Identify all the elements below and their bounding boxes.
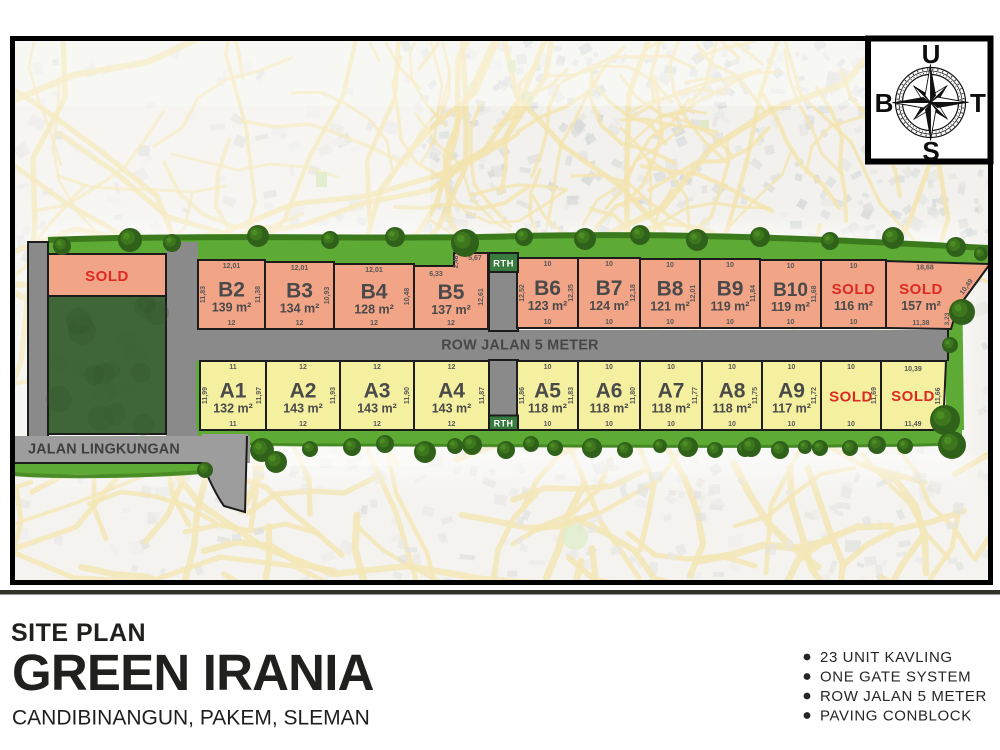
svg-text:11,80: 11,80: [630, 387, 637, 404]
svg-text:A7: A7: [658, 380, 685, 403]
svg-text:10: 10: [788, 421, 796, 428]
svg-text:SITE PLAN: SITE PLAN: [11, 619, 146, 647]
svg-text:B5: B5: [438, 281, 465, 304]
svg-text:23 UNIT KAVLING: 23 UNIT KAVLING: [820, 649, 953, 666]
svg-text:11,86: 11,86: [519, 387, 526, 404]
svg-text:10: 10: [605, 364, 613, 371]
svg-text:12: 12: [448, 364, 456, 371]
svg-text:10: 10: [605, 261, 613, 268]
svg-text:10,39: 10,39: [904, 366, 922, 373]
svg-text:12,01: 12,01: [223, 263, 241, 270]
svg-text:11: 11: [229, 421, 237, 428]
svg-text:12: 12: [373, 421, 381, 428]
svg-text:11,84: 11,84: [750, 285, 757, 302]
svg-text:11,87: 11,87: [479, 387, 486, 404]
svg-text:128 m²: 128 m²: [354, 303, 394, 317]
svg-text:B: B: [875, 88, 894, 118]
svg-text:12,35: 12,35: [568, 284, 575, 302]
svg-text:10,93: 10,93: [324, 287, 331, 305]
svg-text:12: 12: [228, 320, 236, 327]
svg-text:10: 10: [847, 421, 855, 428]
svg-text:12,01: 12,01: [690, 285, 697, 303]
svg-text:10: 10: [850, 319, 858, 326]
svg-text:12,01: 12,01: [291, 265, 309, 272]
svg-text:10: 10: [847, 364, 855, 371]
svg-text:118 m²: 118 m²: [590, 402, 629, 416]
svg-text:A2: A2: [290, 380, 317, 403]
svg-text:B9: B9: [717, 278, 744, 301]
svg-text:12: 12: [447, 320, 455, 327]
svg-text:11,99: 11,99: [202, 387, 209, 404]
svg-text:10: 10: [605, 319, 613, 326]
svg-text:12: 12: [299, 421, 307, 428]
svg-text:B7: B7: [596, 277, 623, 300]
svg-text:12,18: 12,18: [630, 284, 637, 302]
svg-text:B2: B2: [218, 279, 245, 302]
svg-text:A9: A9: [778, 380, 805, 403]
svg-text:B6: B6: [534, 277, 561, 300]
svg-text:10: 10: [544, 364, 552, 371]
svg-text:B4: B4: [361, 281, 388, 304]
svg-text:137 m²: 137 m²: [431, 303, 471, 317]
svg-text:12: 12: [373, 364, 381, 371]
svg-text:A1: A1: [220, 380, 247, 403]
svg-text:10: 10: [666, 262, 674, 269]
svg-text:118 m²: 118 m²: [528, 402, 567, 416]
svg-text:10: 10: [666, 319, 674, 326]
svg-text:118 m²: 118 m²: [652, 402, 691, 416]
svg-text:10: 10: [787, 263, 795, 270]
svg-text:117 m²: 117 m²: [772, 402, 811, 416]
svg-text:10: 10: [667, 364, 675, 371]
svg-text:11,75: 11,75: [752, 387, 759, 404]
svg-text:10: 10: [787, 319, 795, 326]
svg-text:A6: A6: [596, 380, 623, 403]
svg-text:RTH: RTH: [494, 419, 514, 429]
svg-text:11,68: 11,68: [811, 285, 818, 302]
svg-text:10,48: 10,48: [404, 288, 411, 306]
svg-text:10: 10: [728, 421, 736, 428]
svg-text:10: 10: [850, 263, 858, 270]
svg-text:A4: A4: [438, 380, 465, 403]
svg-text:ROW JALAN 5 METER: ROW JALAN 5 METER: [820, 688, 987, 705]
svg-text:11,93: 11,93: [330, 387, 337, 404]
svg-text:ROW JALAN 5 METER: ROW JALAN 5 METER: [441, 338, 599, 354]
svg-text:143 m²: 143 m²: [432, 402, 472, 416]
svg-text:11,38: 11,38: [255, 286, 262, 303]
svg-text:10: 10: [667, 421, 675, 428]
svg-text:T: T: [970, 88, 986, 118]
svg-text:12,61: 12,61: [478, 288, 485, 306]
svg-text:11,38: 11,38: [912, 320, 929, 327]
svg-text:12: 12: [296, 320, 304, 327]
svg-text:U: U: [922, 39, 941, 69]
svg-text:10: 10: [788, 364, 796, 371]
svg-text:11,83: 11,83: [200, 286, 207, 303]
svg-text:119 m²: 119 m²: [771, 300, 810, 314]
svg-text:5,67: 5,67: [468, 255, 482, 262]
svg-text:SOLD: SOLD: [899, 281, 943, 298]
svg-text:SOLD: SOLD: [891, 388, 935, 405]
svg-text:124 m²: 124 m²: [589, 299, 629, 313]
svg-text:RTH: RTH: [493, 259, 514, 270]
svg-text:134 m²: 134 m²: [280, 302, 320, 316]
svg-text:PAVING CONBLOCK: PAVING CONBLOCK: [820, 708, 972, 725]
svg-text:10: 10: [726, 262, 734, 269]
svg-text:132 m²: 132 m²: [213, 402, 253, 416]
svg-text:119 m²: 119 m²: [711, 300, 750, 314]
svg-text:11,49: 11,49: [904, 421, 921, 428]
svg-text:10: 10: [544, 319, 552, 326]
svg-text:10: 10: [544, 261, 552, 268]
svg-text:6,33: 6,33: [429, 271, 443, 278]
svg-text:123 m²: 123 m²: [528, 299, 568, 313]
svg-text:11,90: 11,90: [404, 387, 411, 404]
svg-text:11,77: 11,77: [692, 387, 699, 404]
svg-text:116 m²: 116 m²: [834, 299, 873, 313]
svg-text:12: 12: [370, 320, 378, 327]
svg-text:A8: A8: [719, 380, 746, 403]
svg-text:157 m²: 157 m²: [901, 299, 941, 313]
svg-text:10: 10: [726, 319, 734, 326]
svg-text:143 m²: 143 m²: [283, 402, 323, 416]
svg-text:11: 11: [229, 364, 237, 371]
svg-text:118 m²: 118 m²: [713, 402, 752, 416]
svg-text:18,68: 18,68: [916, 265, 934, 272]
svg-text:SOLD: SOLD: [829, 389, 873, 406]
svg-text:11,83: 11,83: [568, 387, 575, 404]
svg-text:JALAN LINGKUNGAN: JALAN LINGKUNGAN: [28, 442, 180, 458]
svg-text:10: 10: [728, 364, 736, 371]
svg-text:S: S: [922, 136, 939, 166]
svg-text:2,46: 2,46: [453, 255, 460, 268]
svg-text:ONE GATE SYSTEM: ONE GATE SYSTEM: [820, 669, 971, 686]
svg-text:121 m²: 121 m²: [650, 300, 690, 314]
svg-text:10: 10: [544, 421, 552, 428]
svg-text:12: 12: [448, 421, 456, 428]
svg-text:SOLD: SOLD: [832, 281, 876, 298]
svg-text:11,72: 11,72: [811, 387, 818, 404]
svg-text:GREEN IRANIA: GREEN IRANIA: [12, 644, 374, 701]
svg-text:B10: B10: [773, 280, 808, 301]
svg-text:143 m²: 143 m²: [357, 402, 397, 416]
svg-text:10: 10: [605, 421, 613, 428]
svg-text:CANDIBINANGUN, PAKEM, SLEMAN: CANDIBINANGUN, PAKEM, SLEMAN: [12, 707, 370, 730]
svg-text:11,69: 11,69: [871, 387, 878, 404]
svg-text:B8: B8: [657, 278, 684, 301]
svg-text:12,52: 12,52: [519, 284, 526, 302]
svg-text:SOLD: SOLD: [85, 268, 129, 285]
svg-text:11,97: 11,97: [256, 387, 263, 404]
svg-text:12: 12: [299, 364, 307, 371]
svg-text:A5: A5: [534, 380, 561, 403]
svg-text:B3: B3: [286, 280, 313, 303]
svg-text:139 m²: 139 m²: [212, 301, 252, 315]
svg-text:12,01: 12,01: [365, 267, 383, 274]
svg-text:A3: A3: [364, 380, 391, 403]
svg-text:11,66: 11,66: [935, 387, 942, 404]
